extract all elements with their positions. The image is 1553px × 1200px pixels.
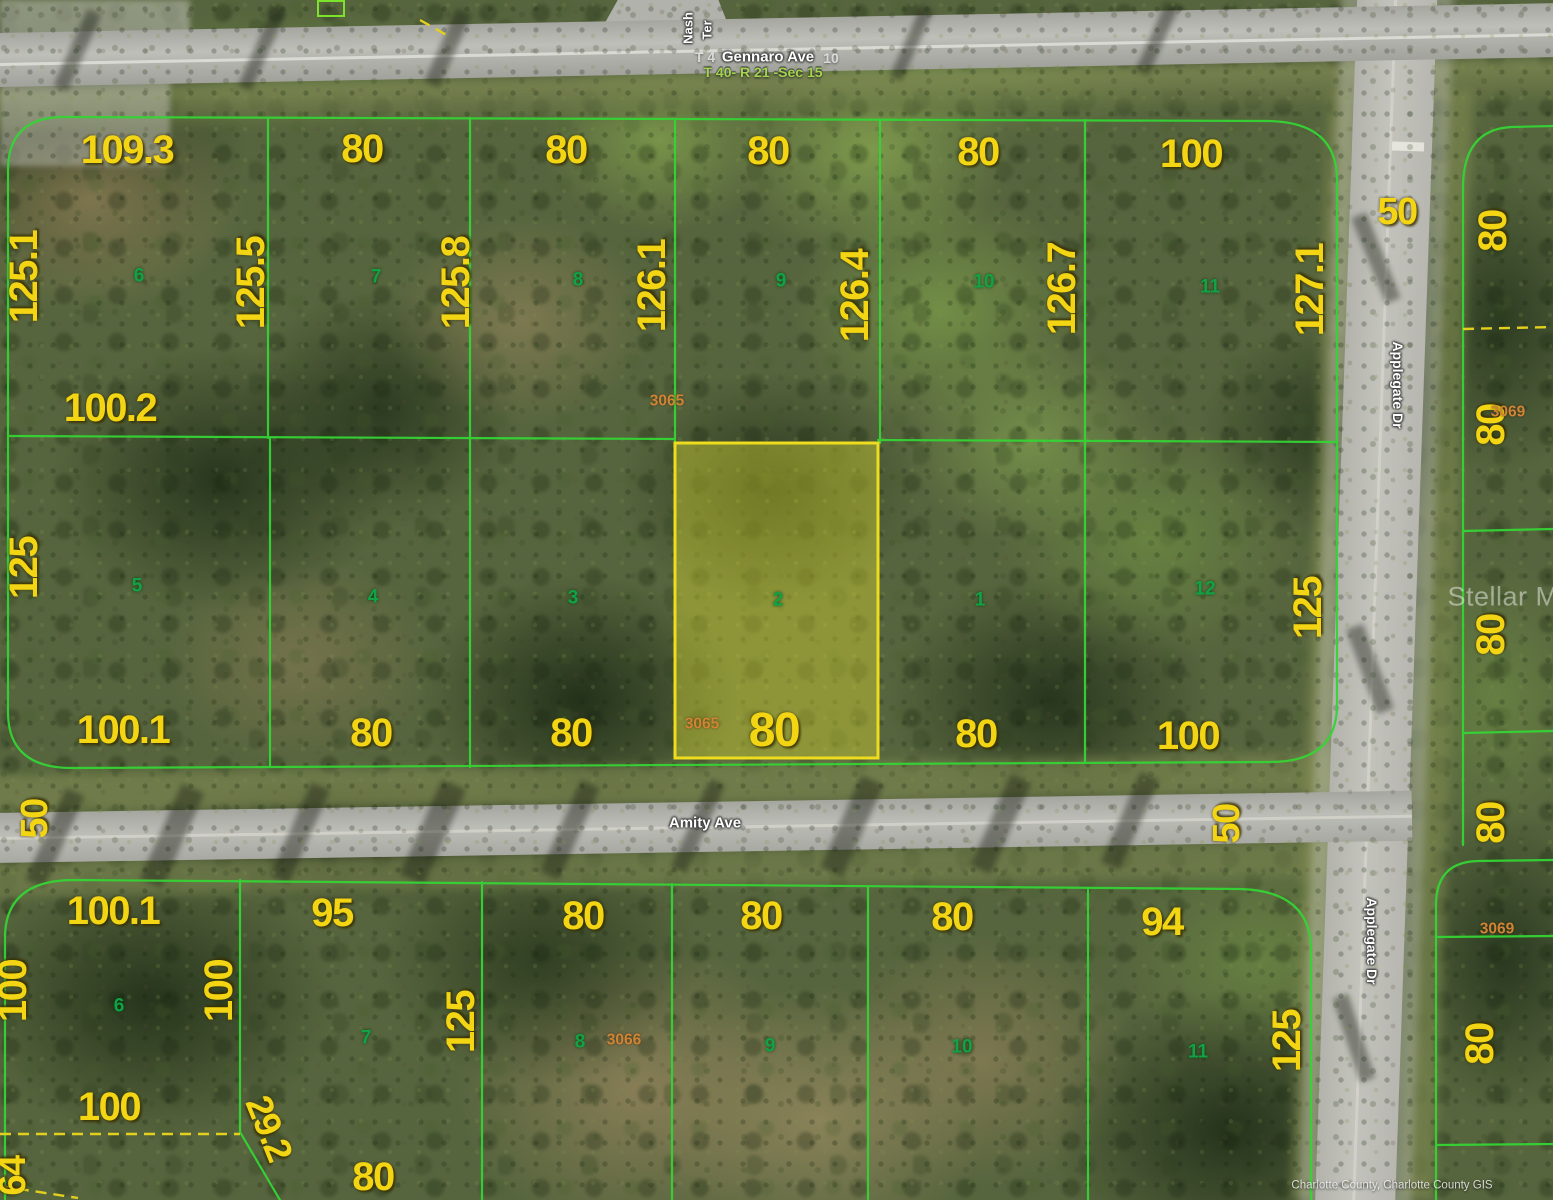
lot-7-north: 7 [371, 268, 382, 287]
street-gennaro-prefix: T 4 [695, 50, 715, 64]
street-nash-line2: Ter [701, 20, 714, 39]
dim-95: 95 [311, 893, 353, 933]
dim-100-2: 100.2 [64, 388, 157, 428]
dim-125-south-east: 125 [1267, 1010, 1307, 1072]
lot-11-south: 11 [1188, 1043, 1208, 1062]
dim-50-amity-east: 50 [1208, 804, 1246, 843]
dim-80-top-a: 80 [341, 129, 383, 169]
lot-8-south: 8 [575, 1033, 586, 1052]
dim-64: 64 [0, 1156, 32, 1195]
dim-109-3: 109.3 [81, 130, 174, 170]
dim-80-mid-b: 80 [550, 713, 592, 753]
street-gennaro-suffix: 10 [823, 51, 839, 65]
dim-100-top: 100 [1160, 134, 1222, 174]
dim-80-south-b: 80 [740, 896, 782, 936]
dim-80-south-a: 80 [562, 896, 604, 936]
dim-100-sw: 100 [199, 960, 239, 1022]
dim-125-8: 125.8 [436, 237, 476, 330]
street-nash-line1: Nash [682, 12, 695, 44]
dim-80-top-d: 80 [957, 132, 999, 172]
dim-80-bottom: 80 [352, 1157, 394, 1197]
lot-1: 1 [975, 591, 986, 610]
dim-80-east-5: 80 [1460, 1023, 1500, 1065]
lot-4: 4 [368, 588, 379, 607]
dim-125-mid-east: 125 [1288, 577, 1328, 639]
dim-100-1-mid: 100.1 [77, 710, 170, 750]
dim-125-mid-west: 125 [4, 537, 44, 599]
map-labels-layer: NashTerT 4Gennaro Ave10T 40- R 21 -Sec 1… [0, 0, 1553, 1200]
lot-10-north: 10 [973, 273, 994, 292]
dim-100-sw-edge: 100 [0, 960, 33, 1022]
dim-94: 94 [1141, 902, 1183, 942]
street-applegate-north: Applegate Dr [1391, 341, 1405, 428]
parcel-id-3069-north: 3069 [1491, 404, 1525, 420]
lot-9-north: 9 [776, 272, 787, 291]
township-range-section: T 40- R 21 -Sec 15 [703, 65, 822, 79]
lot-3: 3 [568, 589, 579, 608]
lot-9-south: 9 [765, 1037, 776, 1056]
county-attribution: Charlotte County, Charlotte County GIS [1291, 1180, 1492, 1192]
lot-6-south: 6 [114, 997, 125, 1016]
dim-126-1: 126.1 [632, 240, 672, 333]
dim-125-5: 125.5 [231, 237, 271, 330]
street-applegate-south: Applegate Dr [1365, 897, 1379, 984]
dim-50-applegate-top: 50 [1377, 193, 1416, 231]
dim-100-mid: 100 [1157, 716, 1219, 756]
lot-6-north: 6 [134, 267, 145, 286]
dim-127-1: 127.1 [1290, 244, 1330, 337]
dim-80-mid-c: 80 [955, 714, 997, 754]
parcel-id-3065-subject: 3065 [685, 716, 719, 732]
dim-80-mid-a: 80 [350, 713, 392, 753]
lot-11-north: 11 [1200, 278, 1220, 297]
parcel-id-3066: 3066 [607, 1032, 641, 1048]
dim-80-top-c: 80 [747, 131, 789, 171]
lot-8-north: 8 [573, 271, 584, 290]
dim-80-south-c: 80 [931, 897, 973, 937]
street-amity: Amity Ave [669, 816, 741, 831]
mls-watermark: Stellar MLS [1447, 584, 1553, 611]
dim-80-top-b: 80 [545, 130, 587, 170]
dim-126-4: 126.4 [835, 250, 875, 343]
dim-80-east-1: 80 [1473, 210, 1513, 252]
lot-5: 5 [132, 577, 143, 596]
dim-80-east-4: 80 [1471, 802, 1511, 844]
parcel-id-3069-south: 3069 [1480, 921, 1514, 937]
parcel-map: NashTerT 4Gennaro Ave10T 40- R 21 -Sec 1… [0, 0, 1553, 1200]
parcel-id-3065-top: 3065 [650, 393, 684, 409]
street-gennaro: Gennaro Ave [722, 50, 814, 65]
dim-80-east-3: 80 [1471, 614, 1511, 656]
lot-7-south: 7 [361, 1029, 372, 1048]
dim-80-subject: 80 [749, 707, 799, 755]
dim-100-1-south: 100.1 [67, 891, 160, 931]
dim-50-amity-west: 50 [16, 799, 54, 838]
lot-2-subject: 2 [773, 591, 784, 610]
dim-100-bottom: 100 [78, 1087, 140, 1127]
lot-12: 12 [1194, 580, 1215, 599]
dim-126-7: 126.7 [1042, 243, 1082, 336]
dim-29-2: 29.2 [239, 1090, 298, 1165]
dim-125-south-west: 125 [441, 991, 481, 1053]
lot-10-south: 10 [951, 1038, 972, 1057]
dim-125-1: 125.1 [4, 231, 44, 324]
